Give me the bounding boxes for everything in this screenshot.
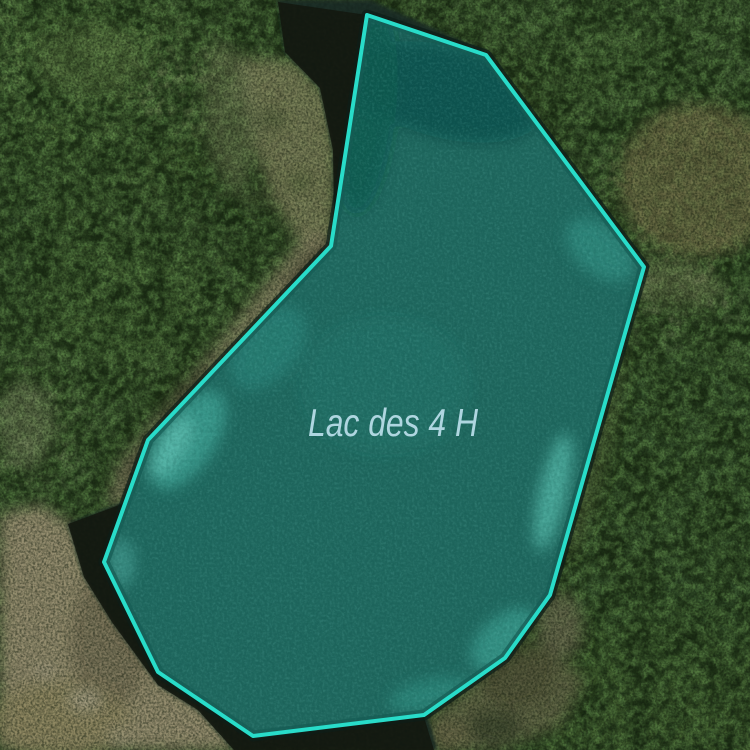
svg-text:Lac des 4 H: Lac des 4 H xyxy=(308,402,478,445)
